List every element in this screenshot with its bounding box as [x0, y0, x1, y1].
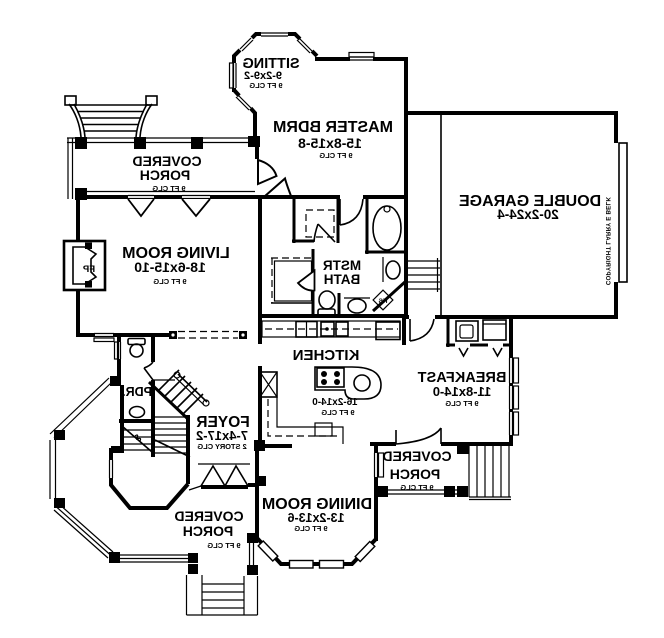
svg-text:18-6x15-10: 18-6x15-10 — [134, 259, 206, 275]
svg-text:KITCHEN: KITCHEN — [293, 347, 360, 364]
svg-text:9 FT CLG: 9 FT CLG — [321, 408, 354, 417]
svg-text:9 FT CLG: 9 FT CLG — [319, 151, 352, 160]
svg-text:11-8x14-0: 11-8x14-0 — [433, 384, 492, 399]
svg-text:9 FT CLG: 9 FT CLG — [207, 541, 240, 550]
svg-text:MSTR: MSTR — [323, 258, 361, 273]
svg-text:9 FT CLG: 9 FT CLG — [294, 524, 327, 533]
svg-text:PORCH: PORCH — [140, 167, 191, 183]
svg-text:COPYRIGHT LARRY E BELK: COPYRIGHT LARRY E BELK — [604, 197, 611, 286]
svg-text:PORCH: PORCH — [390, 466, 441, 482]
svg-text:COVERED: COVERED — [382, 448, 451, 464]
svg-text:COVERED: COVERED — [174, 508, 243, 524]
svg-text:FP: FP — [82, 264, 95, 275]
svg-text:PORCH: PORCH — [183, 523, 234, 539]
svg-text:15-8x15-8: 15-8x15-8 — [298, 135, 362, 151]
svg-text:9 FT CLG: 9 FT CLG — [249, 81, 282, 90]
svg-text:KS: KS — [378, 298, 388, 305]
svg-text:MASTER BDRM: MASTER BDRM — [273, 119, 393, 136]
svg-text:2 STORY CLG: 2 STORY CLG — [197, 442, 247, 451]
svg-text:13-2x13-6: 13-2x13-6 — [287, 511, 344, 525]
svg-text:BATH: BATH — [324, 272, 361, 287]
svg-text:7-4x17-2: 7-4x17-2 — [196, 428, 248, 443]
svg-text:PDR.: PDR. — [122, 385, 152, 399]
svg-text:9 FT CLG: 9 FT CLG — [153, 277, 186, 286]
svg-text:20-2x24-4: 20-2x24-4 — [497, 207, 559, 222]
svg-text:9 FT CLG: 9 FT CLG — [445, 399, 478, 408]
svg-text:9 FT CLG: 9 FT CLG — [400, 483, 433, 492]
svg-text:9 FT CLG: 9 FT CLG — [152, 184, 185, 193]
svg-text:16-2x14-0: 16-2x14-0 — [312, 397, 358, 408]
